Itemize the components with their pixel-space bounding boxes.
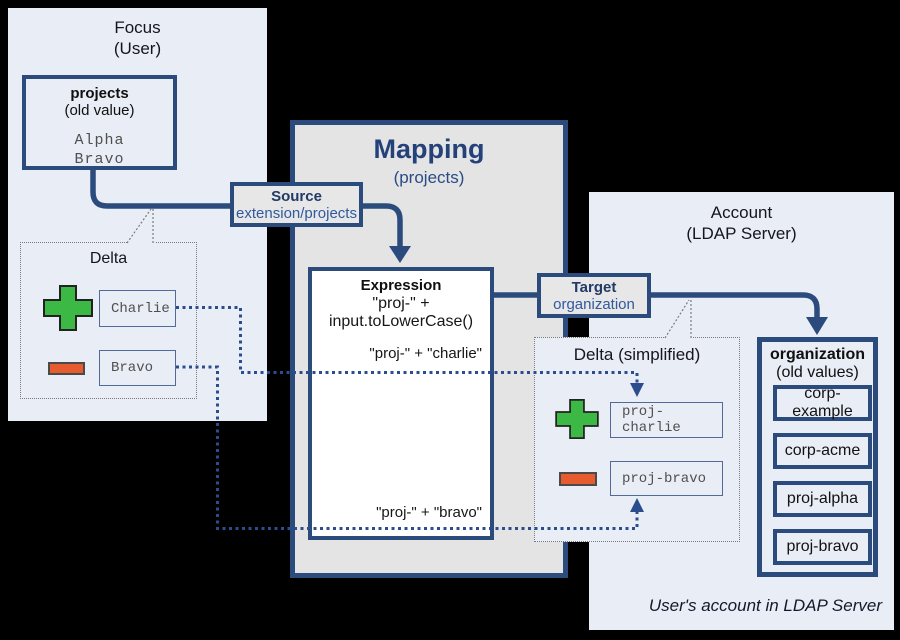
target-path: organization xyxy=(541,296,647,313)
target-label-box: Target organization xyxy=(537,273,651,318)
account-delta-callout-pointer xyxy=(665,299,693,339)
arrow-down-into-proj-charlie-icon xyxy=(630,383,644,397)
dotted-connectors-layer xyxy=(0,0,900,640)
source-label: Source xyxy=(234,188,359,205)
charlie-delta-flow-line xyxy=(176,308,637,384)
arrow-up-into-proj-bravo-icon xyxy=(630,498,644,512)
bravo-delta-flow-line xyxy=(176,367,637,529)
diagram-canvas: Focus (User) projects (old value) Alpha … xyxy=(0,0,900,640)
source-label-box: Source extension/projects xyxy=(230,182,363,227)
target-label: Target xyxy=(541,279,647,296)
source-path: extension/projects xyxy=(234,205,359,222)
focus-delta-callout-pointer xyxy=(127,209,155,244)
